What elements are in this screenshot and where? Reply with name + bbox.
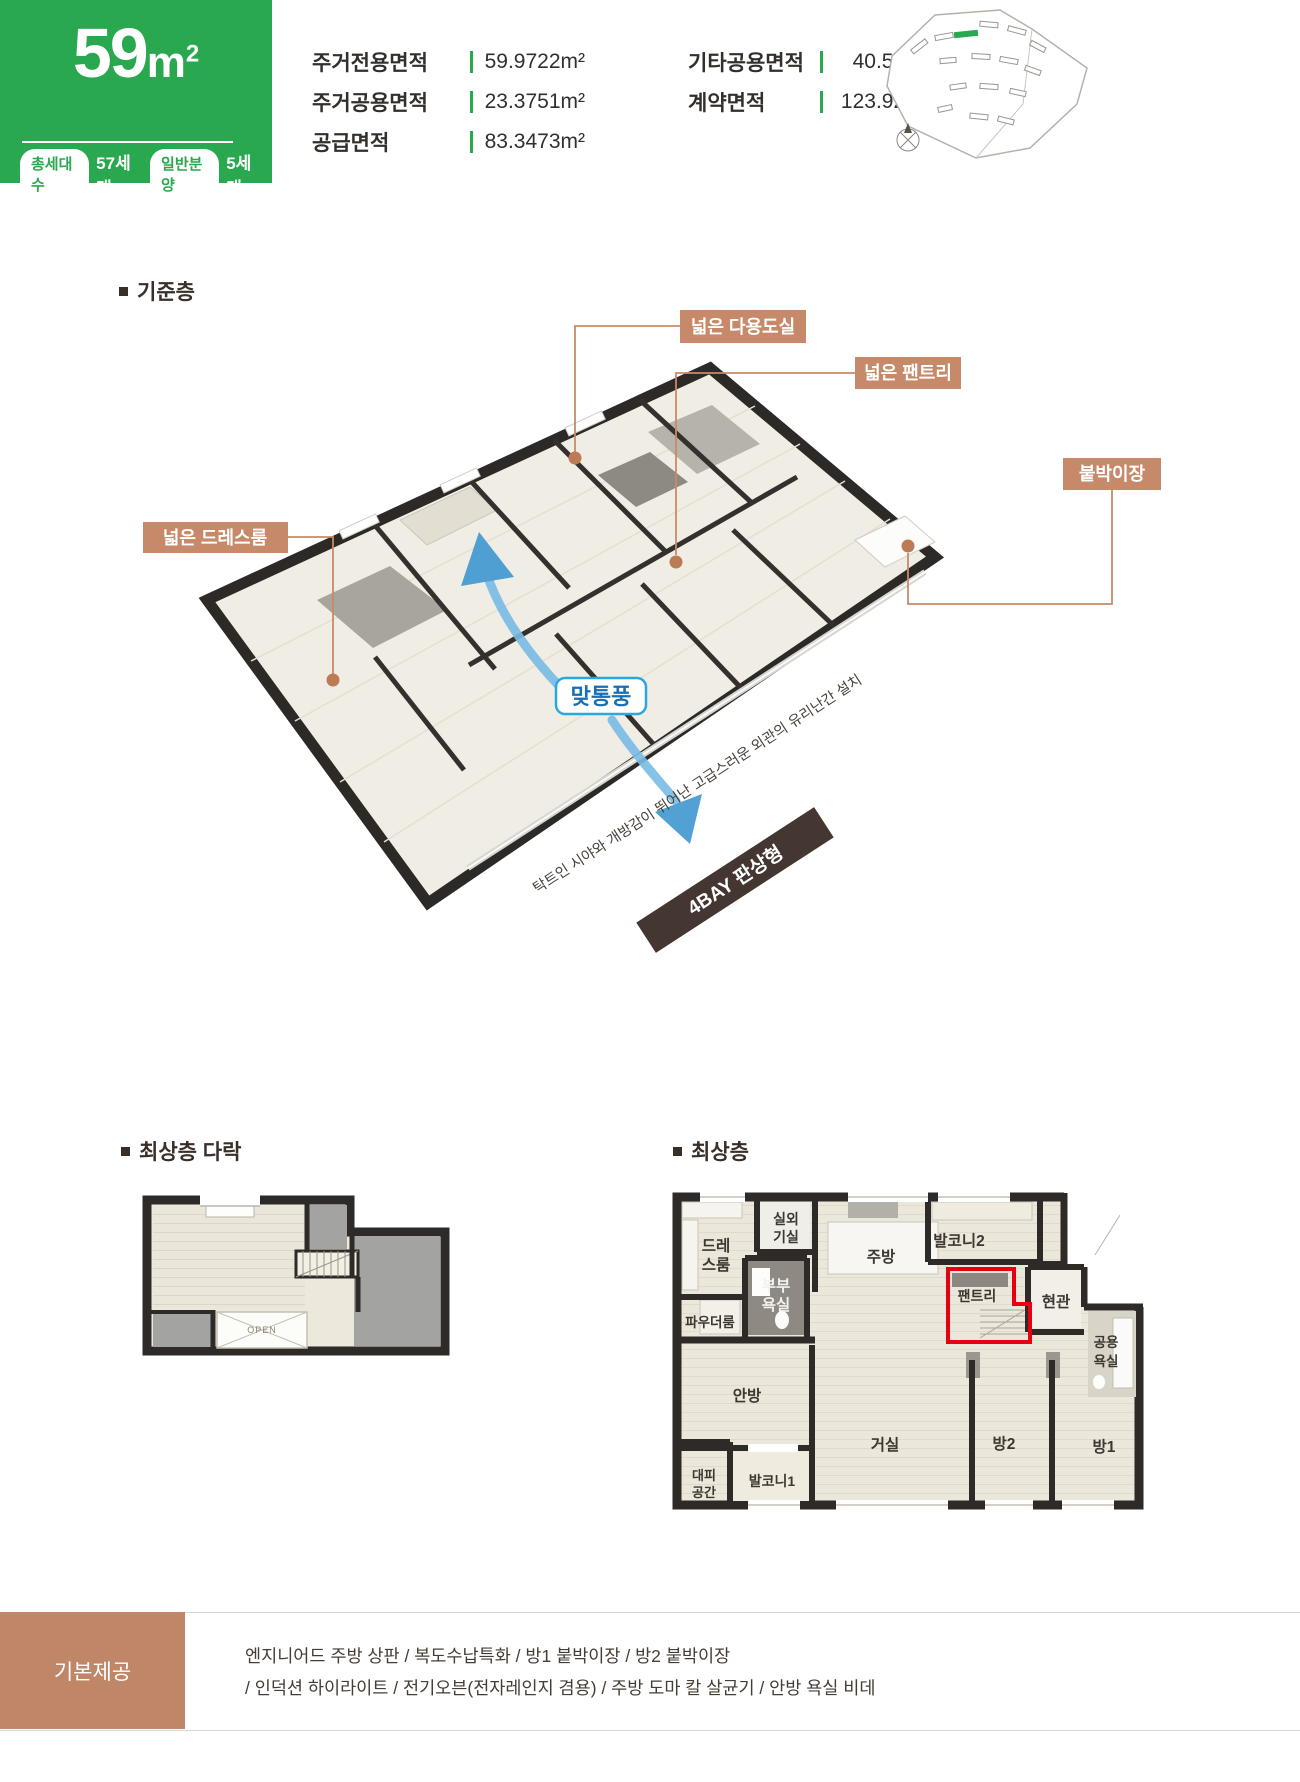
bullet-icon	[121, 1147, 130, 1156]
divider	[470, 91, 473, 113]
room-label-master: 안방	[733, 1387, 762, 1405]
section-title-text: 최상층	[691, 1136, 749, 1166]
standard-floor-plan-graphic: 넓은 다용도실 넓은 팬트리 붙박이장 넓은 드레스룸 맞통풍 탁트인 시야와 …	[100, 255, 1180, 955]
room-label-couple-bath: 욕실	[762, 1296, 791, 1314]
section-title-text: 최상층 다락	[139, 1136, 241, 1166]
callout-dressroom: 넓은 드레스룸	[163, 528, 267, 548]
footer-bottom-divider	[0, 1730, 1300, 1731]
open-label: OPEN	[247, 1325, 277, 1335]
area-value: 83.3473m²	[482, 130, 585, 154]
unit-size-sup: 2	[186, 40, 199, 67]
attic-open-void: OPEN	[217, 1312, 307, 1348]
room-label-public-bath: 욕실	[1094, 1354, 1119, 1369]
badge-general-sale: 일반분양	[150, 149, 219, 199]
area-value: 23.3751m²	[482, 90, 585, 114]
area-label: 기타공용면적	[688, 47, 820, 77]
footer-provision-line: / 인덕션 하이라이트 / 전기오븐(전자레인지 겸용) / 주방 도마 칼 살…	[245, 1672, 875, 1704]
divider	[470, 51, 473, 73]
room-label-shelter: 공간	[692, 1485, 716, 1500]
cross-vent-label: 맞통풍	[571, 684, 632, 709]
room-label-public-bath: 공용	[1094, 1335, 1119, 1350]
room-label-dressroom: 스룸	[702, 1256, 731, 1274]
attic-stair	[296, 1251, 358, 1277]
unit-size-unit: m	[147, 38, 186, 87]
room-label-outdoor-unit: 실외	[773, 1211, 799, 1227]
divider	[820, 91, 823, 113]
section-title-top-floor: 최상층	[673, 1136, 749, 1166]
badges: 총세대수 57세대 일반분양 5세대	[20, 149, 272, 199]
area-label: 계약면적	[688, 87, 820, 117]
footer-provisions: 엔지니어드 주방 상판 / 복도수납특화 / 방1 붙박이장 / 방2 붙박이장…	[245, 1640, 875, 1704]
area-label: 주거공용면적	[312, 87, 470, 117]
divider	[820, 51, 823, 73]
room-label-living: 거실	[871, 1436, 900, 1454]
footer-top-divider	[0, 1612, 1300, 1613]
bay-ribbon-label: 4BAY 판상형	[684, 842, 788, 920]
room-label-room2: 방2	[993, 1435, 1016, 1453]
room-label-balcony1: 발코니1	[749, 1473, 796, 1489]
room-label-outdoor-unit: 기실	[773, 1229, 799, 1245]
unit-type-title: 59m2	[0, 18, 272, 88]
area-label: 주거전용면적	[312, 47, 470, 77]
bay-ribbon: 4BAY 판상형	[636, 807, 833, 953]
bullet-icon	[673, 1147, 682, 1156]
divider	[470, 131, 473, 153]
roof-gray-left	[153, 1314, 211, 1347]
attic-window	[200, 1194, 260, 1206]
badge-total-households-value: 57세대	[96, 149, 139, 199]
top-floor-plan: 드레 스룸 실외 기실 주방 발코니2 부부 욕실 파우더룸 팬트리 현관 공용…	[655, 1185, 1155, 1520]
room-label-kitchen: 주방	[867, 1248, 896, 1266]
divider	[22, 141, 233, 143]
footer-provision-line: 엔지니어드 주방 상판 / 복도수납특화 / 방1 붙박이장 / 방2 붙박이장	[245, 1640, 875, 1672]
area-label: 공급면적	[312, 127, 470, 157]
area-row: 주거전용면적59.9722m²	[312, 47, 585, 77]
room-label-entrance: 현관	[1042, 1292, 1071, 1311]
attic-floor-plan: OPEN	[128, 1188, 458, 1368]
section-title-attic: 최상층 다락	[121, 1136, 241, 1166]
badge-total-households: 총세대수	[20, 149, 89, 199]
area-row: 공급면적83.3473m²	[312, 127, 585, 157]
room-label-couple-bath: 부부	[762, 1277, 791, 1295]
attic-floor	[153, 1206, 305, 1308]
brochure-page: 59m2 총세대수 57세대 일반분양 5세대 주거전용면적59.9722m² …	[0, 0, 1300, 1782]
site-map	[880, 6, 1095, 164]
callout-builtin-closet: 붙박이장	[1079, 464, 1146, 484]
area-row: 주거공용면적23.3751m²	[312, 87, 585, 117]
room-label-pantry: 팬트리	[958, 1288, 997, 1304]
room-label-balcony2: 발코니2	[933, 1232, 984, 1250]
roof-gray-strip	[309, 1205, 347, 1249]
room-label-powder-room: 파우더룸	[685, 1315, 735, 1330]
callout-utility-room: 넓은 다용도실	[691, 317, 795, 337]
footer-title: 기본제공	[54, 1656, 131, 1686]
badge-general-sale-value: 5세대	[226, 149, 261, 199]
room-label-shelter: 대피	[692, 1468, 716, 1483]
room-label-room1: 방1	[1093, 1438, 1116, 1456]
cross-vent-badge: 맞통풍	[556, 678, 646, 714]
callout-pantry: 넓은 팬트리	[864, 363, 952, 383]
unit-size-number: 59	[73, 14, 147, 92]
floorplan-3d	[207, 368, 935, 903]
area-value: 59.9722m²	[482, 50, 585, 74]
footer-title-box: 기본제공	[0, 1612, 185, 1729]
roof-gray-right	[354, 1236, 440, 1346]
room-label-dressroom: 드레	[702, 1237, 731, 1255]
unit-type-card: 59m2 총세대수 57세대 일반분양 5세대	[0, 0, 272, 183]
